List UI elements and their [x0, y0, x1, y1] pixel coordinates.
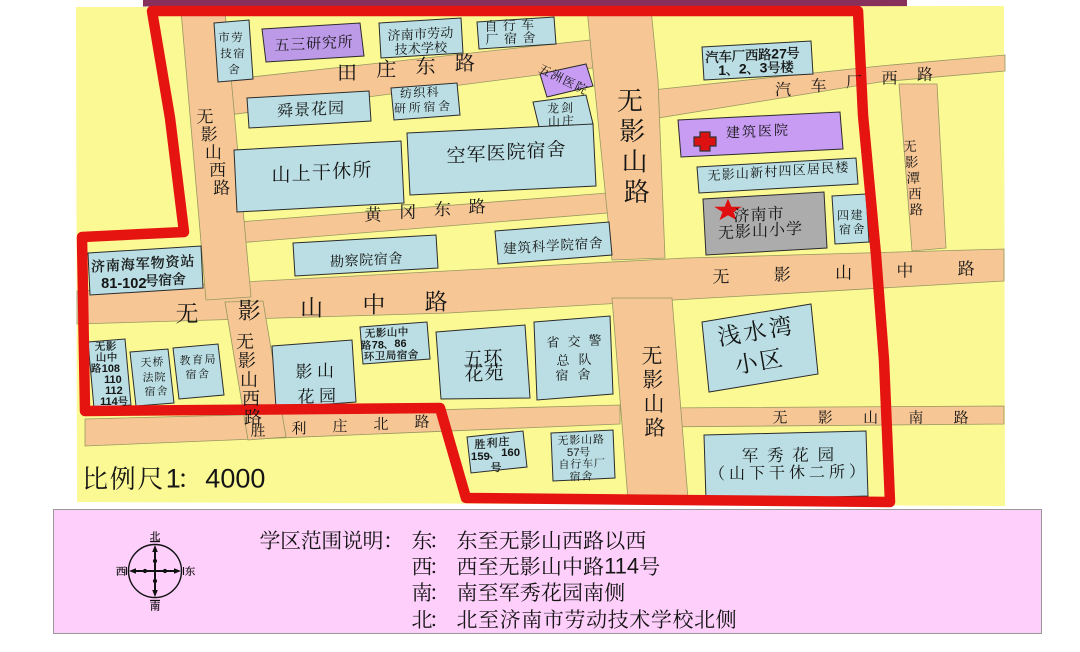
svg-text:81-102: 81-102 — [101, 276, 146, 292]
svg-text:159: 159 — [471, 451, 490, 463]
svg-text:57: 57 — [567, 447, 580, 459]
svg-text:114: 114 — [100, 396, 118, 408]
svg-text:1: 1 — [718, 62, 726, 78]
svg-text:78: 78 — [372, 339, 384, 351]
svg-text:2: 2 — [739, 61, 747, 77]
svg-text:86: 86 — [394, 338, 406, 350]
svg-text:4000: 4000 — [205, 463, 265, 493]
svg-text:1: 1 — [166, 463, 181, 493]
svg-text:114: 114 — [604, 554, 639, 579]
svg-text:3: 3 — [760, 60, 768, 76]
svg-text:160: 160 — [501, 447, 520, 459]
svg-text:27: 27 — [771, 45, 787, 61]
